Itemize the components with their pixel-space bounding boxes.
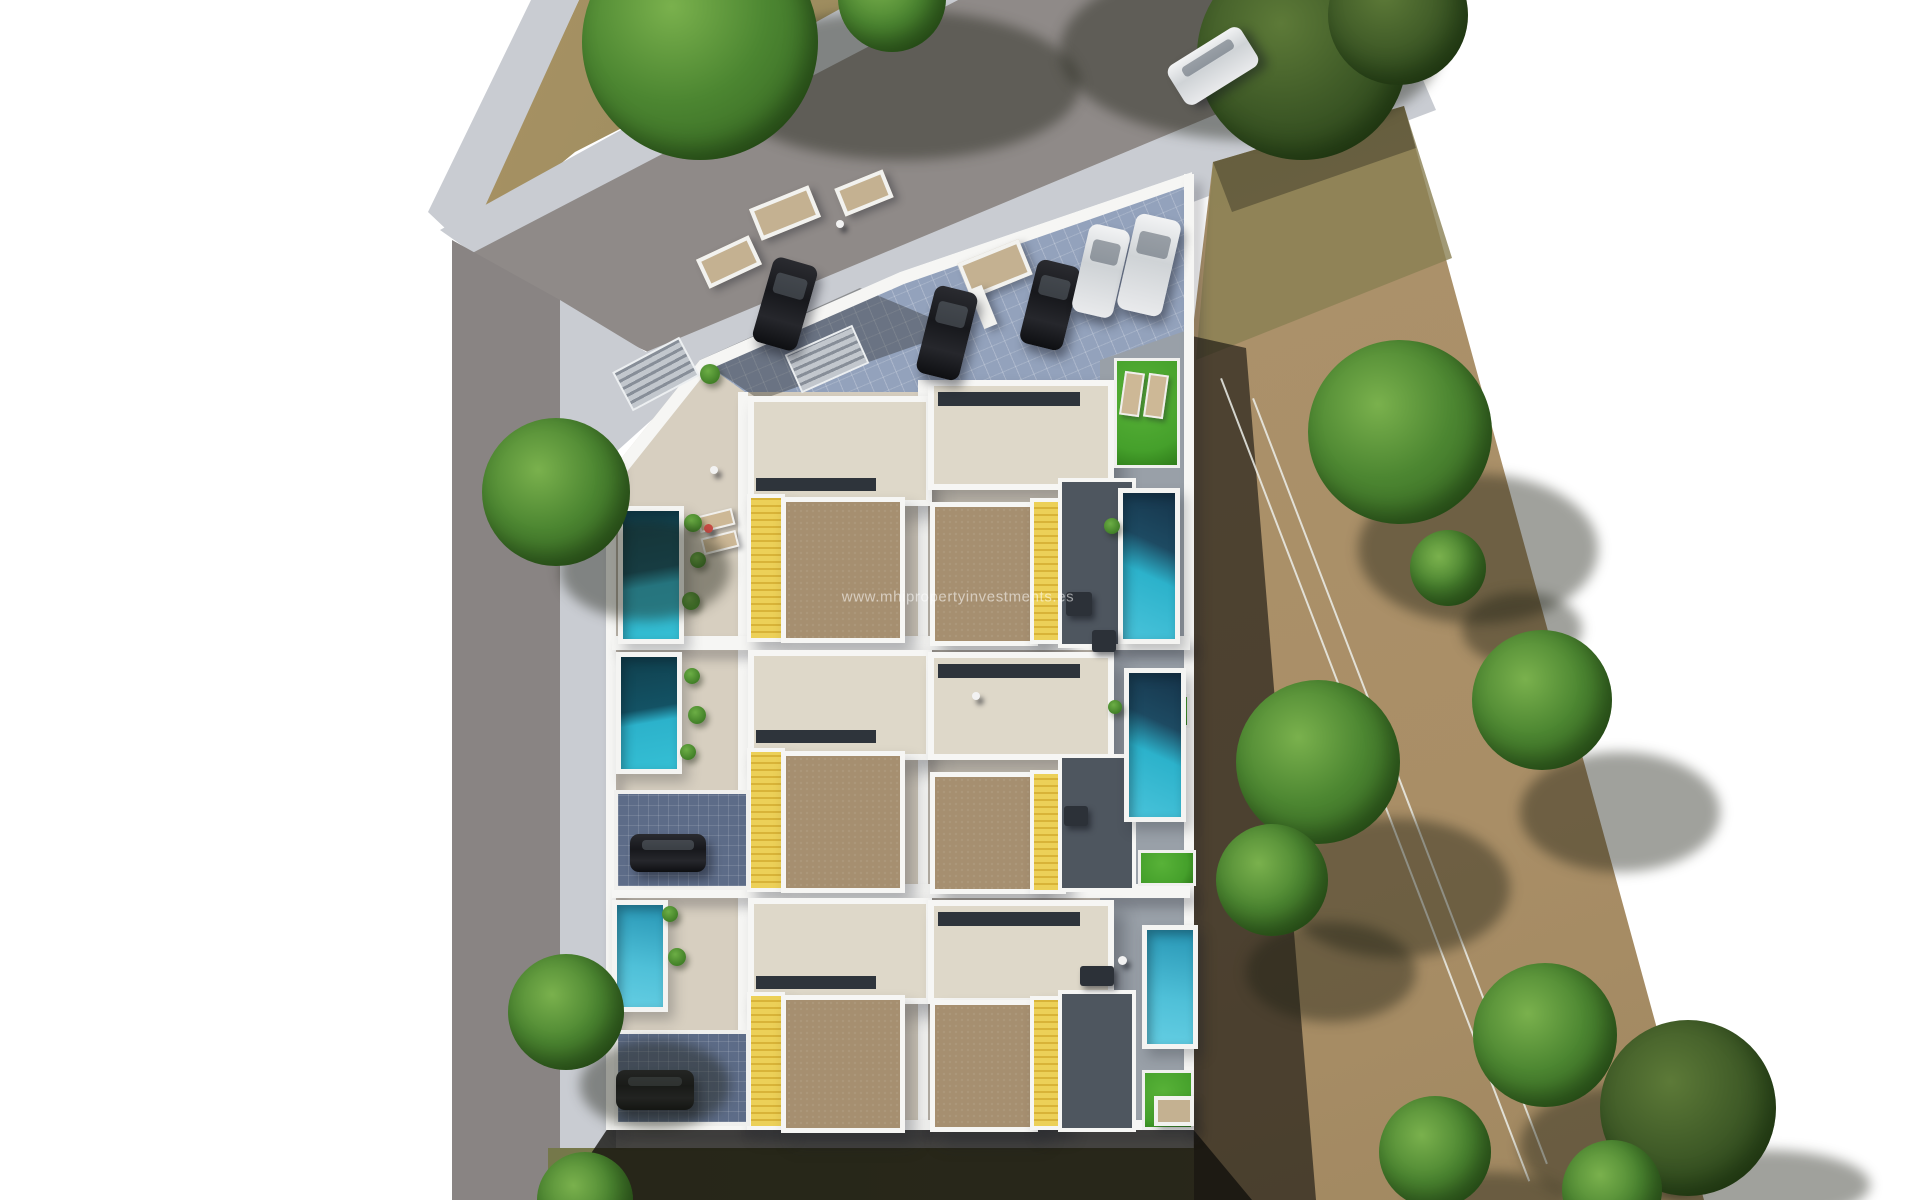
stairwell-slot — [756, 730, 876, 743]
street-tree — [508, 954, 624, 1070]
shrub — [688, 706, 706, 724]
tree-shadow — [1520, 752, 1720, 872]
patio-furniture — [1080, 966, 1114, 986]
field-tree — [1379, 1096, 1491, 1200]
person — [836, 220, 844, 228]
roof-solarium — [930, 502, 1038, 646]
field-tree — [1308, 340, 1492, 524]
deck-yellow — [747, 748, 785, 892]
house-terrace — [748, 650, 932, 760]
shrub — [680, 744, 696, 760]
shrub — [662, 906, 678, 922]
stairwell-slot — [756, 478, 876, 491]
paver-pad — [1154, 1096, 1194, 1126]
roof-solarium — [781, 751, 905, 893]
person — [1118, 956, 1127, 965]
tree-shadow — [1246, 922, 1416, 1022]
person — [972, 692, 980, 700]
shrub — [700, 364, 720, 384]
shrub — [684, 668, 700, 684]
shrub — [1104, 518, 1120, 534]
parked-car — [630, 834, 706, 872]
patio-furniture — [1064, 806, 1088, 826]
garden-grass — [1138, 850, 1196, 886]
stairwell-slot — [938, 664, 1080, 678]
roof-solarium — [930, 1000, 1038, 1132]
stairwell-slot — [938, 912, 1080, 926]
person — [704, 524, 713, 533]
deck-yellow — [747, 992, 785, 1130]
deck-yellow — [747, 494, 785, 642]
shrub — [1108, 700, 1122, 714]
street-tree — [482, 418, 630, 566]
field-tree — [1216, 824, 1328, 936]
shrub — [668, 948, 686, 966]
field-tree — [1236, 680, 1400, 844]
field-tree — [1473, 963, 1617, 1107]
pool — [616, 652, 682, 774]
pool — [1142, 925, 1198, 1049]
watermark: www.mhipropertyinvestments.es — [842, 589, 1074, 606]
person — [710, 466, 718, 474]
roof-solarium — [930, 772, 1038, 894]
patio-shaded — [1058, 990, 1136, 1132]
pool — [1124, 668, 1186, 822]
aerial-development-render: www.mhipropertyinvestments.es — [0, 0, 1920, 1200]
pool — [1118, 488, 1180, 644]
field-tree — [1410, 530, 1486, 606]
roof-solarium — [781, 497, 905, 643]
patio-furniture — [1092, 630, 1116, 652]
stairwell-slot — [938, 392, 1080, 406]
field-tree — [1472, 630, 1612, 770]
roof-solarium — [781, 995, 905, 1133]
stairwell-slot — [756, 976, 876, 989]
